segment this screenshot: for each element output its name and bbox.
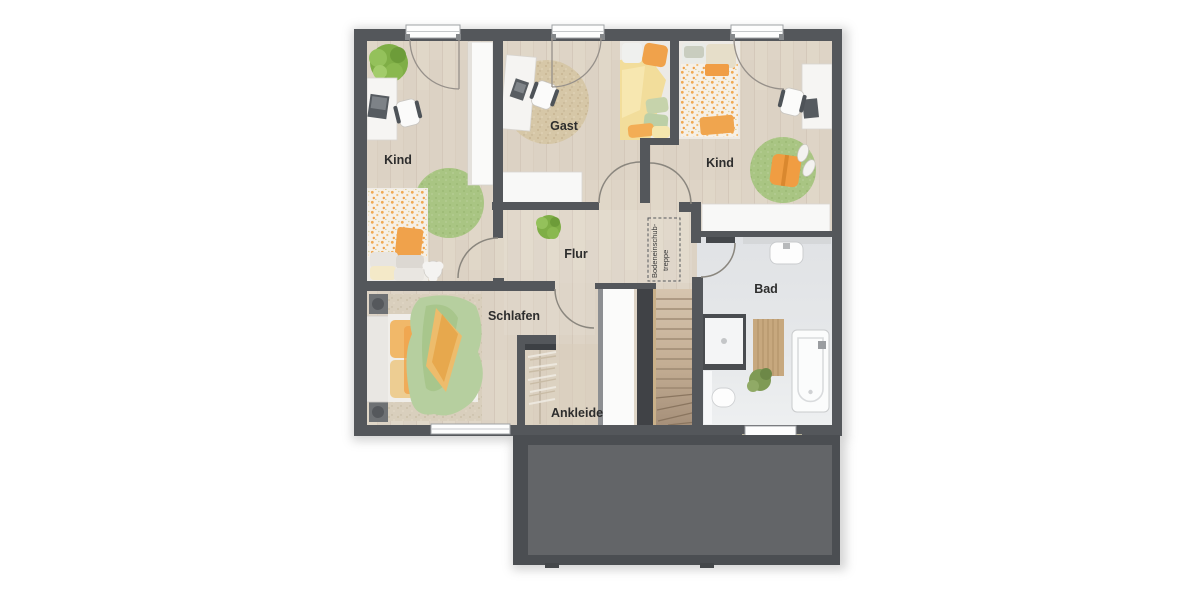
svg-text:Flur: Flur: [564, 247, 588, 261]
svg-text:Kind: Kind: [384, 153, 412, 167]
svg-text:Gast: Gast: [550, 119, 579, 133]
svg-text:treppe: treppe: [661, 250, 670, 271]
svg-text:Bodeneinschub-: Bodeneinschub-: [650, 223, 659, 278]
svg-text:Ankleide: Ankleide: [551, 406, 603, 420]
svg-text:Schlafen: Schlafen: [488, 309, 540, 323]
svg-text:Kind: Kind: [706, 156, 734, 170]
svg-text:Bad: Bad: [754, 282, 778, 296]
